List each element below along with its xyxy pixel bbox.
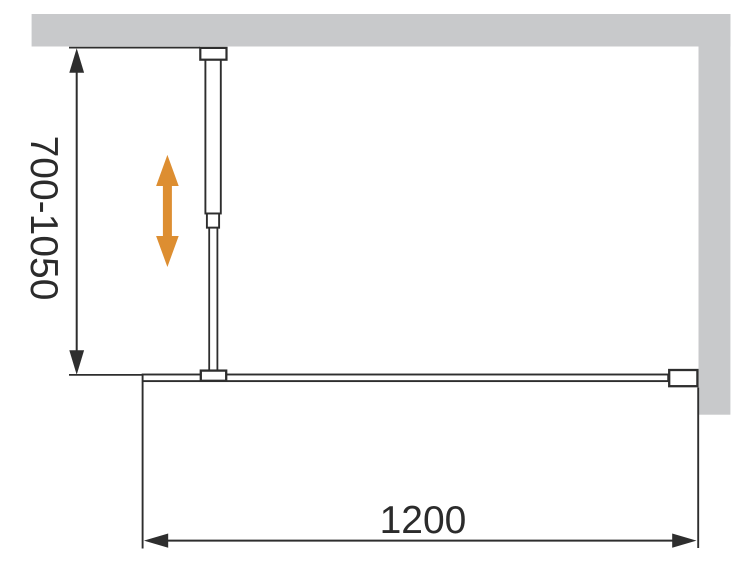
svg-text:700-1050: 700-1050 [22,136,65,301]
svg-text:1200: 1200 [380,499,467,542]
